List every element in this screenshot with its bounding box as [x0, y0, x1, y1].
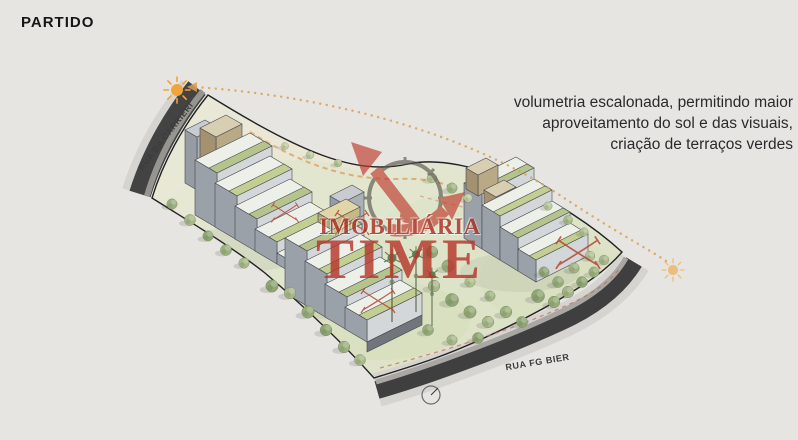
sun-icon — [164, 77, 190, 103]
site-plan-illustration: RUA DA CARRIERI RUA FG BIER — [0, 0, 798, 440]
tree — [260, 280, 279, 293]
tree — [314, 324, 332, 337]
tree — [296, 306, 315, 319]
partido-diagram-page: PARTIDO volumetria escalonada, permitind… — [0, 0, 798, 440]
tree — [332, 341, 350, 354]
tree — [215, 244, 232, 256]
tree — [278, 287, 296, 300]
sun-icon — [662, 259, 684, 281]
tree — [198, 231, 214, 242]
tree — [349, 354, 366, 366]
tree — [234, 258, 250, 269]
